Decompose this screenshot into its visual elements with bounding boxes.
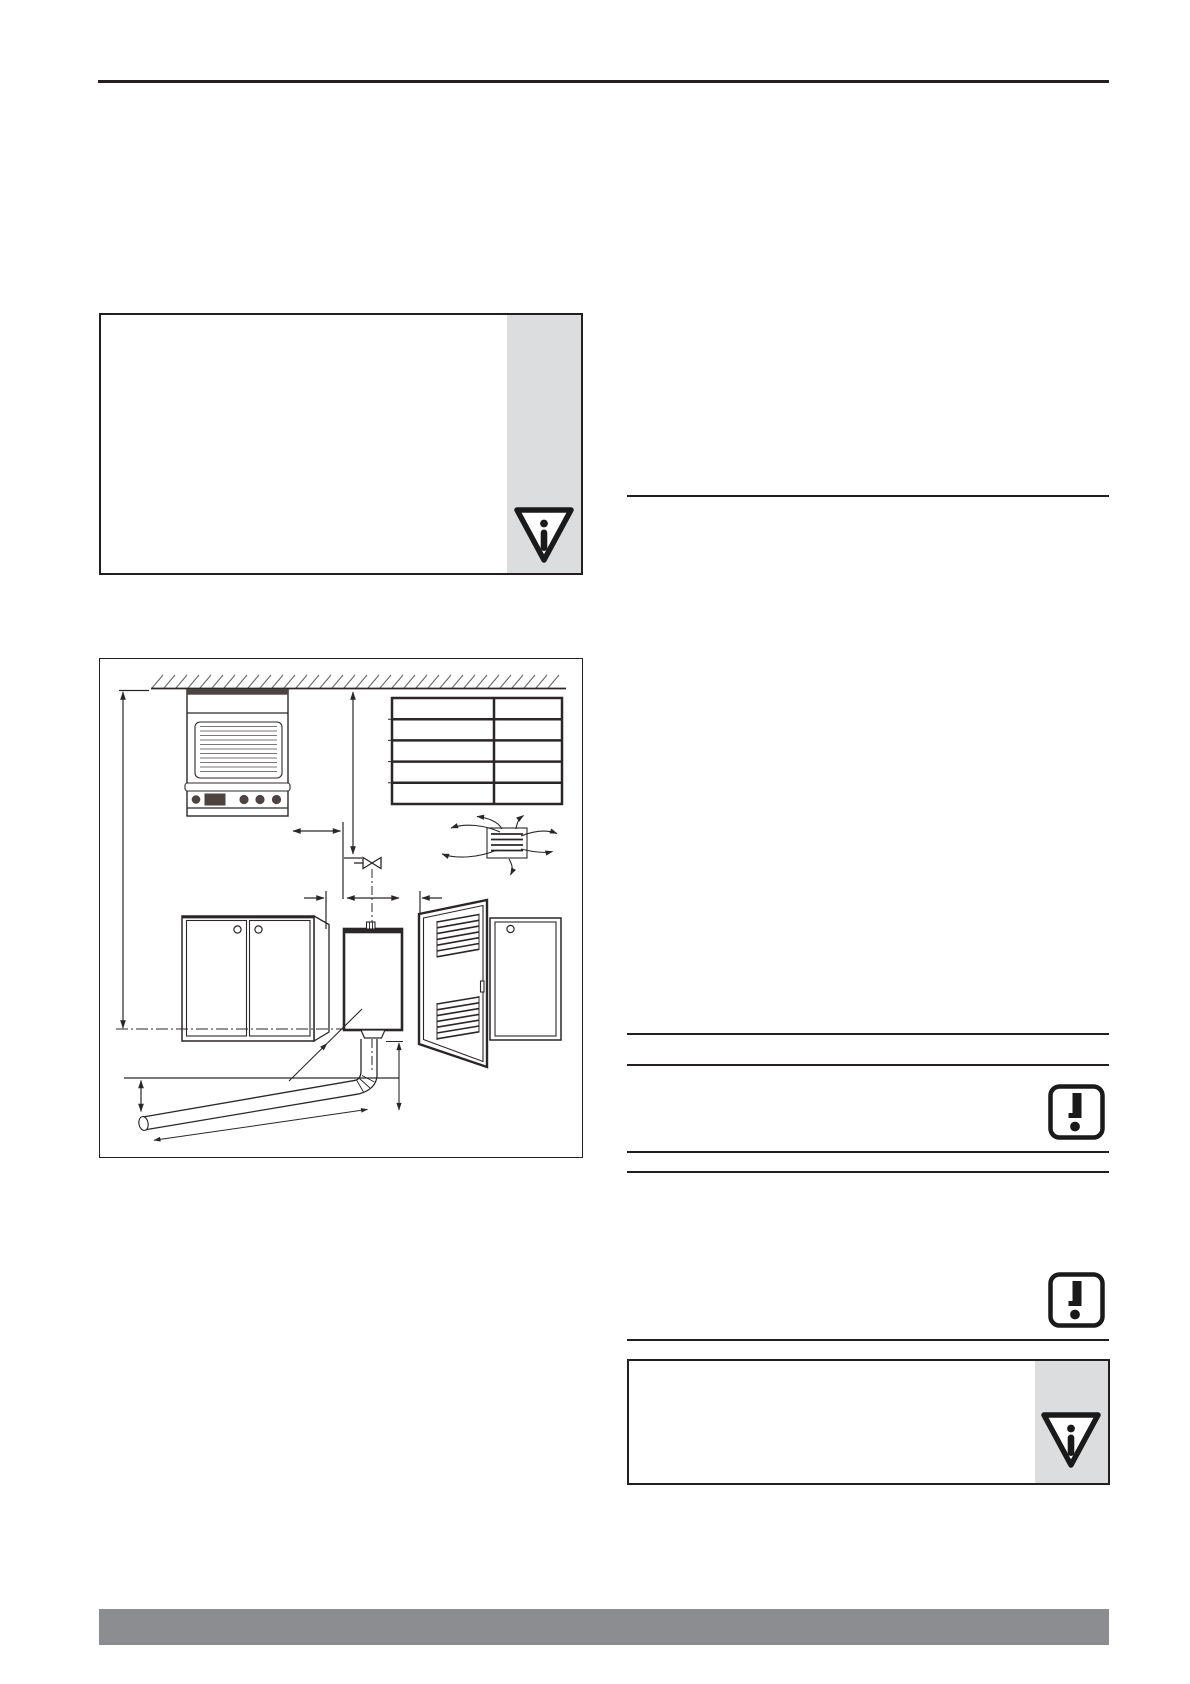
info-triangle-icon (1039, 1408, 1103, 1470)
top-rule (98, 80, 1109, 83)
rule-right-1 (627, 495, 1109, 497)
ventilation-louvre-grid (388, 698, 562, 804)
dimension-appliance-clearance (293, 822, 343, 899)
wall-appliance (185, 689, 290, 816)
water-heater (344, 922, 402, 1038)
rule-right-2 (627, 1033, 1109, 1035)
dimension-ceiling-to-valve (344, 692, 362, 858)
warning-exclamation-icon (1048, 1084, 1105, 1140)
air-vent-grille (442, 816, 557, 876)
warning-exclamation-icon (1048, 1272, 1105, 1328)
footer-bar (99, 1609, 1109, 1645)
louvred-door-open (419, 900, 487, 1067)
rule-right-5 (627, 1171, 1109, 1173)
note-sidebar (1035, 1361, 1108, 1483)
ceiling-hatching (151, 675, 566, 689)
info-triangle-icon (512, 503, 576, 565)
manual-page (0, 0, 1190, 1684)
dimension-left-height (119, 691, 149, 1029)
dimension-pipe-drop (386, 1042, 403, 1111)
info-note-box-2 (627, 1359, 1110, 1485)
note-sidebar (507, 315, 581, 573)
installation-figure-frame (99, 658, 583, 1158)
installation-figure (100, 659, 580, 1155)
flue-pipe (138, 1039, 377, 1140)
cupboard-left (182, 916, 329, 1041)
cupboard-right (490, 918, 561, 1040)
rule-right-3 (627, 1064, 1109, 1066)
rule-right-6 (627, 1339, 1109, 1341)
rule-right-4 (627, 1151, 1109, 1153)
door-handle (481, 981, 485, 992)
info-note-box-1 (99, 313, 583, 575)
